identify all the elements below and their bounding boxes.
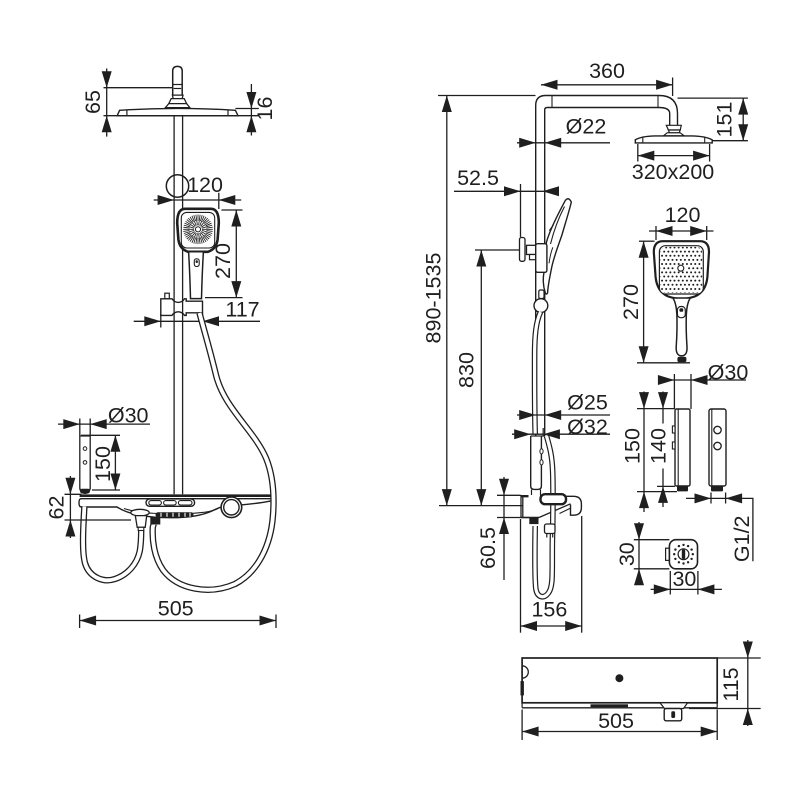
svg-text:65: 65 <box>81 90 105 114</box>
svg-text:505: 505 <box>158 596 194 620</box>
svg-text:270: 270 <box>211 243 235 279</box>
svg-text:30: 30 <box>615 542 639 566</box>
svg-text:62: 62 <box>44 496 68 520</box>
svg-text:151: 151 <box>712 102 736 138</box>
svg-text:150: 150 <box>91 446 115 482</box>
svg-text:150: 150 <box>620 428 644 464</box>
svg-text:270: 270 <box>619 284 643 320</box>
svg-text:Ø30: Ø30 <box>708 360 749 384</box>
svg-text:117: 117 <box>225 297 259 321</box>
svg-text:115: 115 <box>719 667 743 701</box>
svg-text:120: 120 <box>665 203 701 227</box>
svg-text:140: 140 <box>646 428 670 464</box>
svg-text:890-1535: 890-1535 <box>421 253 445 344</box>
svg-text:60.5: 60.5 <box>476 527 500 569</box>
svg-text:Ø32: Ø32 <box>567 415 608 439</box>
svg-text:52.5: 52.5 <box>457 166 499 190</box>
svg-text:16: 16 <box>253 97 277 121</box>
svg-text:156: 156 <box>531 597 567 621</box>
svg-text:G1/2: G1/2 <box>730 515 754 562</box>
svg-text:30: 30 <box>672 567 696 591</box>
svg-text:Ø30: Ø30 <box>108 403 149 427</box>
svg-text:360: 360 <box>589 59 625 83</box>
svg-text:320x200: 320x200 <box>632 160 715 184</box>
svg-text:Ø25: Ø25 <box>567 390 608 414</box>
svg-text:505: 505 <box>598 709 634 733</box>
svg-text:120: 120 <box>187 173 223 197</box>
svg-text:830: 830 <box>454 352 478 388</box>
svg-text:Ø22: Ø22 <box>566 114 607 138</box>
